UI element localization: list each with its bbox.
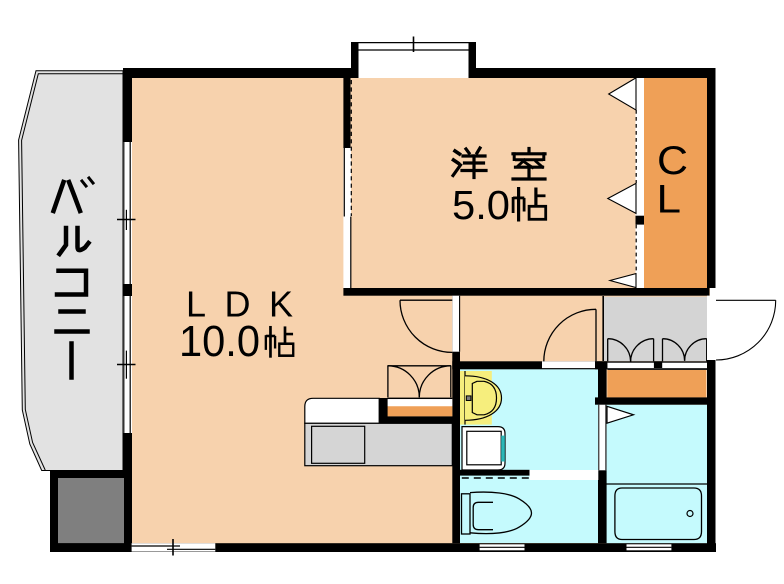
svg-text:L: L xyxy=(657,178,682,222)
svg-text:5.0: 5.0 xyxy=(452,182,510,228)
svg-text:C: C xyxy=(657,139,688,183)
svg-text:10.0: 10.0 xyxy=(179,317,260,366)
